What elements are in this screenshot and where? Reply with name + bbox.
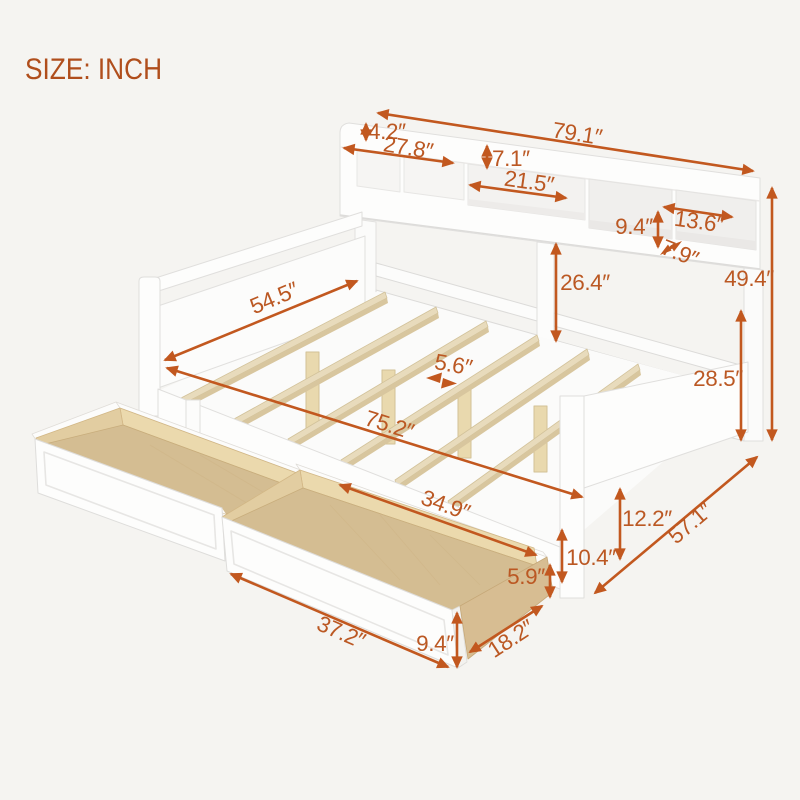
svg-text:SIZE: INCH: SIZE: INCH bbox=[25, 51, 162, 85]
svg-text:28.5″: 28.5″ bbox=[693, 366, 743, 391]
svg-text:9.4″: 9.4″ bbox=[416, 631, 454, 656]
svg-text:5.9″: 5.9″ bbox=[507, 564, 545, 589]
svg-text:49.4″: 49.4″ bbox=[724, 266, 774, 291]
svg-text:10.4″: 10.4″ bbox=[566, 545, 616, 570]
svg-text:9.4″: 9.4″ bbox=[615, 214, 653, 239]
svg-text:26.4″: 26.4″ bbox=[560, 270, 610, 295]
